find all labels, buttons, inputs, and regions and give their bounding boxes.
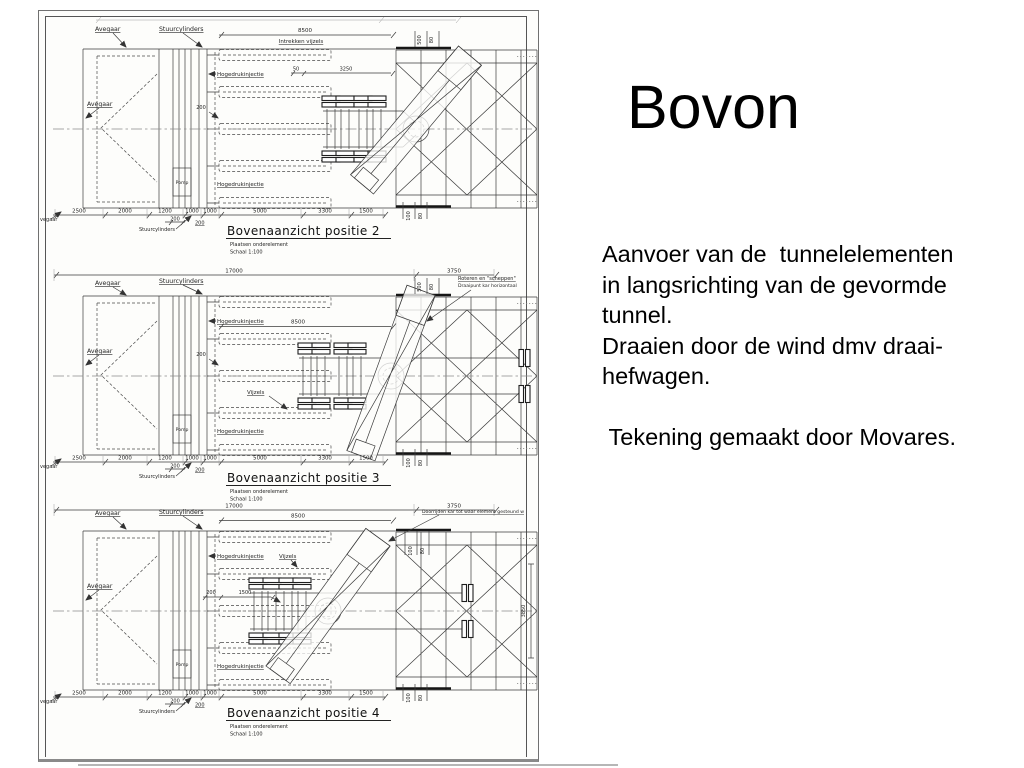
dim-1500-mid: 1500	[239, 590, 252, 596]
dim-1500: 1500	[359, 691, 373, 697]
slide-title: Bovon	[627, 72, 800, 142]
slide: 8500 50 3250 500 80 200 2500 2000 1200 1…	[0, 0, 1024, 768]
label-stuurcylinders-top: Stuurcylinders	[159, 278, 204, 285]
label-avegaar-top: Avegaar	[95, 280, 121, 287]
dim-17000: 17000	[225, 504, 243, 510]
drawing-panel-positie-3: 17000 3750	[39, 263, 538, 508]
dim-1000a: 1000	[185, 691, 199, 697]
dim-3850-vertical: 3850	[521, 605, 527, 618]
cut-top-dimension-line	[96, 17, 461, 23]
dim-1000a: 1000	[185, 456, 199, 462]
label-stuurcylinders-bottom: Stuurcylinders	[139, 709, 175, 715]
label-stuurcylinders-bottom: Stuurcylinders	[139, 474, 175, 480]
panel-subtitle: Plaatsen onderelement	[230, 724, 288, 730]
dim-17000: 17000	[225, 269, 243, 275]
dim-200-sub2: 200	[195, 221, 205, 227]
part-labels: Avegaar Stuurcylinders Intrekken vijzels…	[40, 26, 323, 233]
dim-200-sub: 200	[170, 699, 180, 705]
dim-3250: 3250	[340, 67, 353, 73]
dim-500-vertical: 500	[417, 35, 423, 45]
dim-5000: 5000	[253, 456, 267, 462]
label-avegaar-top: Avegaar	[95, 510, 121, 517]
dimensions-top: 17000 3750	[54, 269, 499, 282]
dim-1000a: 1000	[185, 209, 199, 215]
dim-1200: 1200	[158, 209, 172, 215]
dim-5000: 5000	[253, 209, 267, 215]
label-avegaar-cut: vegaar	[40, 217, 58, 223]
dim-100-vertical: 100	[406, 211, 412, 221]
label-pomp: Pomp	[176, 662, 189, 668]
tunnel-element	[351, 46, 482, 194]
dim-5000: 5000	[253, 691, 267, 697]
dim-8500: 8500	[291, 320, 305, 326]
label-avegaar-mid: Avegaar	[87, 348, 113, 355]
label-stuurcylinders-bottom: Stuurcylinders	[139, 227, 175, 233]
dim-80-vertical2: 80	[418, 460, 424, 466]
dim-500-vertical: 500	[417, 282, 423, 292]
label-pomp: Pomp	[176, 427, 189, 433]
dim-3300: 3300	[318, 209, 332, 215]
tunnel-element	[266, 528, 390, 683]
dim-200-sub: 200	[170, 217, 180, 223]
dim-50: 50	[293, 67, 299, 73]
dim-80-vertical2: 80	[418, 213, 424, 219]
dim-80-vertical: 80	[429, 284, 435, 290]
dim-80-vertical-top: 80	[420, 548, 426, 554]
dim-200-sub: 200	[170, 464, 180, 470]
dim-3750: 3750	[447, 269, 461, 275]
dim-2500: 2500	[72, 209, 86, 215]
dim-1500: 1500	[359, 209, 373, 215]
dim-2000: 2000	[118, 209, 132, 215]
label-stuurcylinders-top: Stuurcylinders	[159, 26, 204, 33]
dim-200-sub2: 200	[195, 468, 205, 474]
panel-subtitle: Plaatsen onderelement	[230, 242, 288, 248]
dim-8500: 8500	[291, 514, 305, 520]
dim-200-sub2: 200	[195, 703, 205, 709]
label-stuurcylinders-top: Stuurcylinders	[159, 509, 204, 516]
panel-title: Bovenaanzicht positie 4	[227, 706, 380, 720]
slide-body-text: Aanvoer van de tunnelelementen in langsr…	[602, 239, 992, 453]
label-intrekken-vijzels: Intrekken vijzels	[279, 39, 324, 45]
drawing-panel-positie-4: 17000 3750	[39, 498, 538, 743]
panel-title: Bovenaanzicht positie 2	[227, 224, 380, 238]
dim-3300: 3300	[318, 456, 332, 462]
dim-80-vertical2: 80	[418, 695, 424, 701]
label-pomp: Pomp	[176, 180, 189, 186]
dim-100-vertical-top: 100	[408, 546, 414, 556]
drawing-panel-positie-2: 8500 50 3250 500 80 200 2500 2000 1200 1…	[39, 16, 538, 261]
dim-3300: 3300	[318, 691, 332, 697]
scan-shadow	[78, 764, 618, 766]
dim-2500: 2500	[72, 456, 86, 462]
label-vijzels: Vijzels	[247, 390, 264, 396]
label-avegaar-cut: vegaar	[40, 464, 58, 470]
dim-100-vertical: 100	[406, 458, 412, 468]
label-avegaar-cut: vegaar	[40, 699, 58, 705]
dim-1500: 1500	[359, 456, 373, 462]
dim-1200: 1200	[158, 691, 172, 697]
label-hogedrukinjectie-upper: Hogedrukinjectie	[217, 319, 264, 325]
label-draaipunt-note: Draaipunt kar horizontaal	[458, 283, 517, 289]
dim-80-vertical: 80	[429, 37, 435, 43]
label-hogedrukinjectie-lower: Hogedrukinjectie	[217, 429, 264, 435]
dim-200-mid: 200	[196, 352, 206, 358]
dim-1200: 1200	[158, 456, 172, 462]
panel-scale: Schaal 1:100	[230, 732, 263, 738]
panel-subtitle: Plaatsen onderelement	[230, 489, 288, 495]
technical-drawing-scan: 8500 50 3250 500 80 200 2500 2000 1200 1…	[38, 10, 539, 762]
label-avegaar-mid: Avegaar	[87, 101, 113, 108]
dim-1000b: 1000	[203, 209, 217, 215]
label-avegaar-mid: Avegaar	[87, 583, 113, 590]
dim-3750: 3750	[447, 504, 461, 510]
dim-2000: 2000	[118, 691, 132, 697]
part-labels: Avegaar Stuurcylinders Roteren en "schep…	[40, 276, 517, 480]
label-hogedrukinjectie-upper: Hogedrukinjectie	[217, 554, 264, 560]
label-hogedrukinjectie-upper: Hogedrukinjectie	[217, 72, 264, 78]
title-block: Bovenaanzicht positie 2 Plaatsen onderel…	[226, 224, 391, 256]
label-doorrijden-note: Doorrijden kar tot waar element gesteund…	[422, 509, 524, 515]
title-block: Bovenaanzicht positie 4 Plaatsen onderel…	[226, 706, 391, 738]
dim-1000b: 1000	[203, 456, 217, 462]
dim-2000: 2000	[118, 456, 132, 462]
dim-1000b: 1000	[203, 691, 217, 697]
label-roteren-note: Roteren en "scheppen"	[458, 276, 516, 282]
dim-200-mid: 200	[206, 590, 216, 596]
label-avegaar-top: Avegaar	[95, 26, 121, 33]
tunnel-element	[347, 285, 435, 461]
dim-8500: 8500	[298, 28, 312, 34]
dim-200-mid: 200	[196, 105, 206, 111]
label-hogedrukinjectie-lower: Hogedrukinjectie	[217, 182, 264, 188]
panel-title: Bovenaanzicht positie 3	[227, 471, 380, 485]
panel-scale: Schaal 1:100	[230, 250, 263, 256]
dim-2500: 2500	[72, 691, 86, 697]
label-vijzels: Vijzels	[279, 554, 296, 560]
label-hogedrukinjectie-lower: Hogedrukinjectie	[217, 664, 264, 670]
dim-100-vertical: 100	[406, 693, 412, 703]
